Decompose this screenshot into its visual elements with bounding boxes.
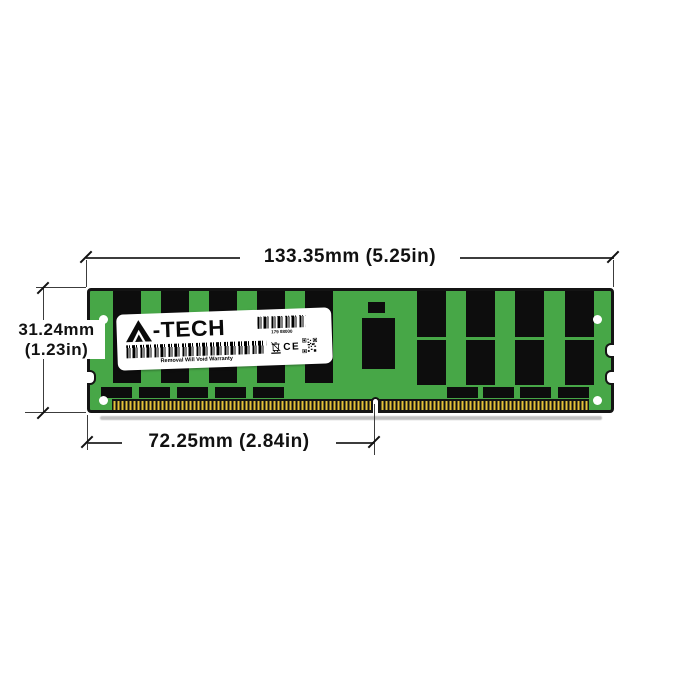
height-dimension-mm: 31.24mm — [8, 320, 105, 340]
notch-dimension-text: 72.25mm (2.84in) — [122, 431, 336, 453]
height-dimension-text: 31.24mm (1.23in) — [8, 320, 105, 359]
width-dimension-text: 133.35mm (5.25in) — [240, 246, 460, 268]
extension-line — [613, 260, 614, 287]
height-dimension-in: (1.23in) — [8, 340, 105, 360]
extension-line — [86, 260, 87, 287]
extension-line — [25, 412, 86, 413]
extension-line — [87, 415, 88, 450]
dimension-annotations: 133.35mm (5.25in) 31.24mm (1.23in) 72.25… — [0, 0, 700, 700]
extension-line — [374, 404, 375, 455]
product-diagram: -TECH 179 88000 Removal Will Void Warran… — [0, 0, 700, 700]
